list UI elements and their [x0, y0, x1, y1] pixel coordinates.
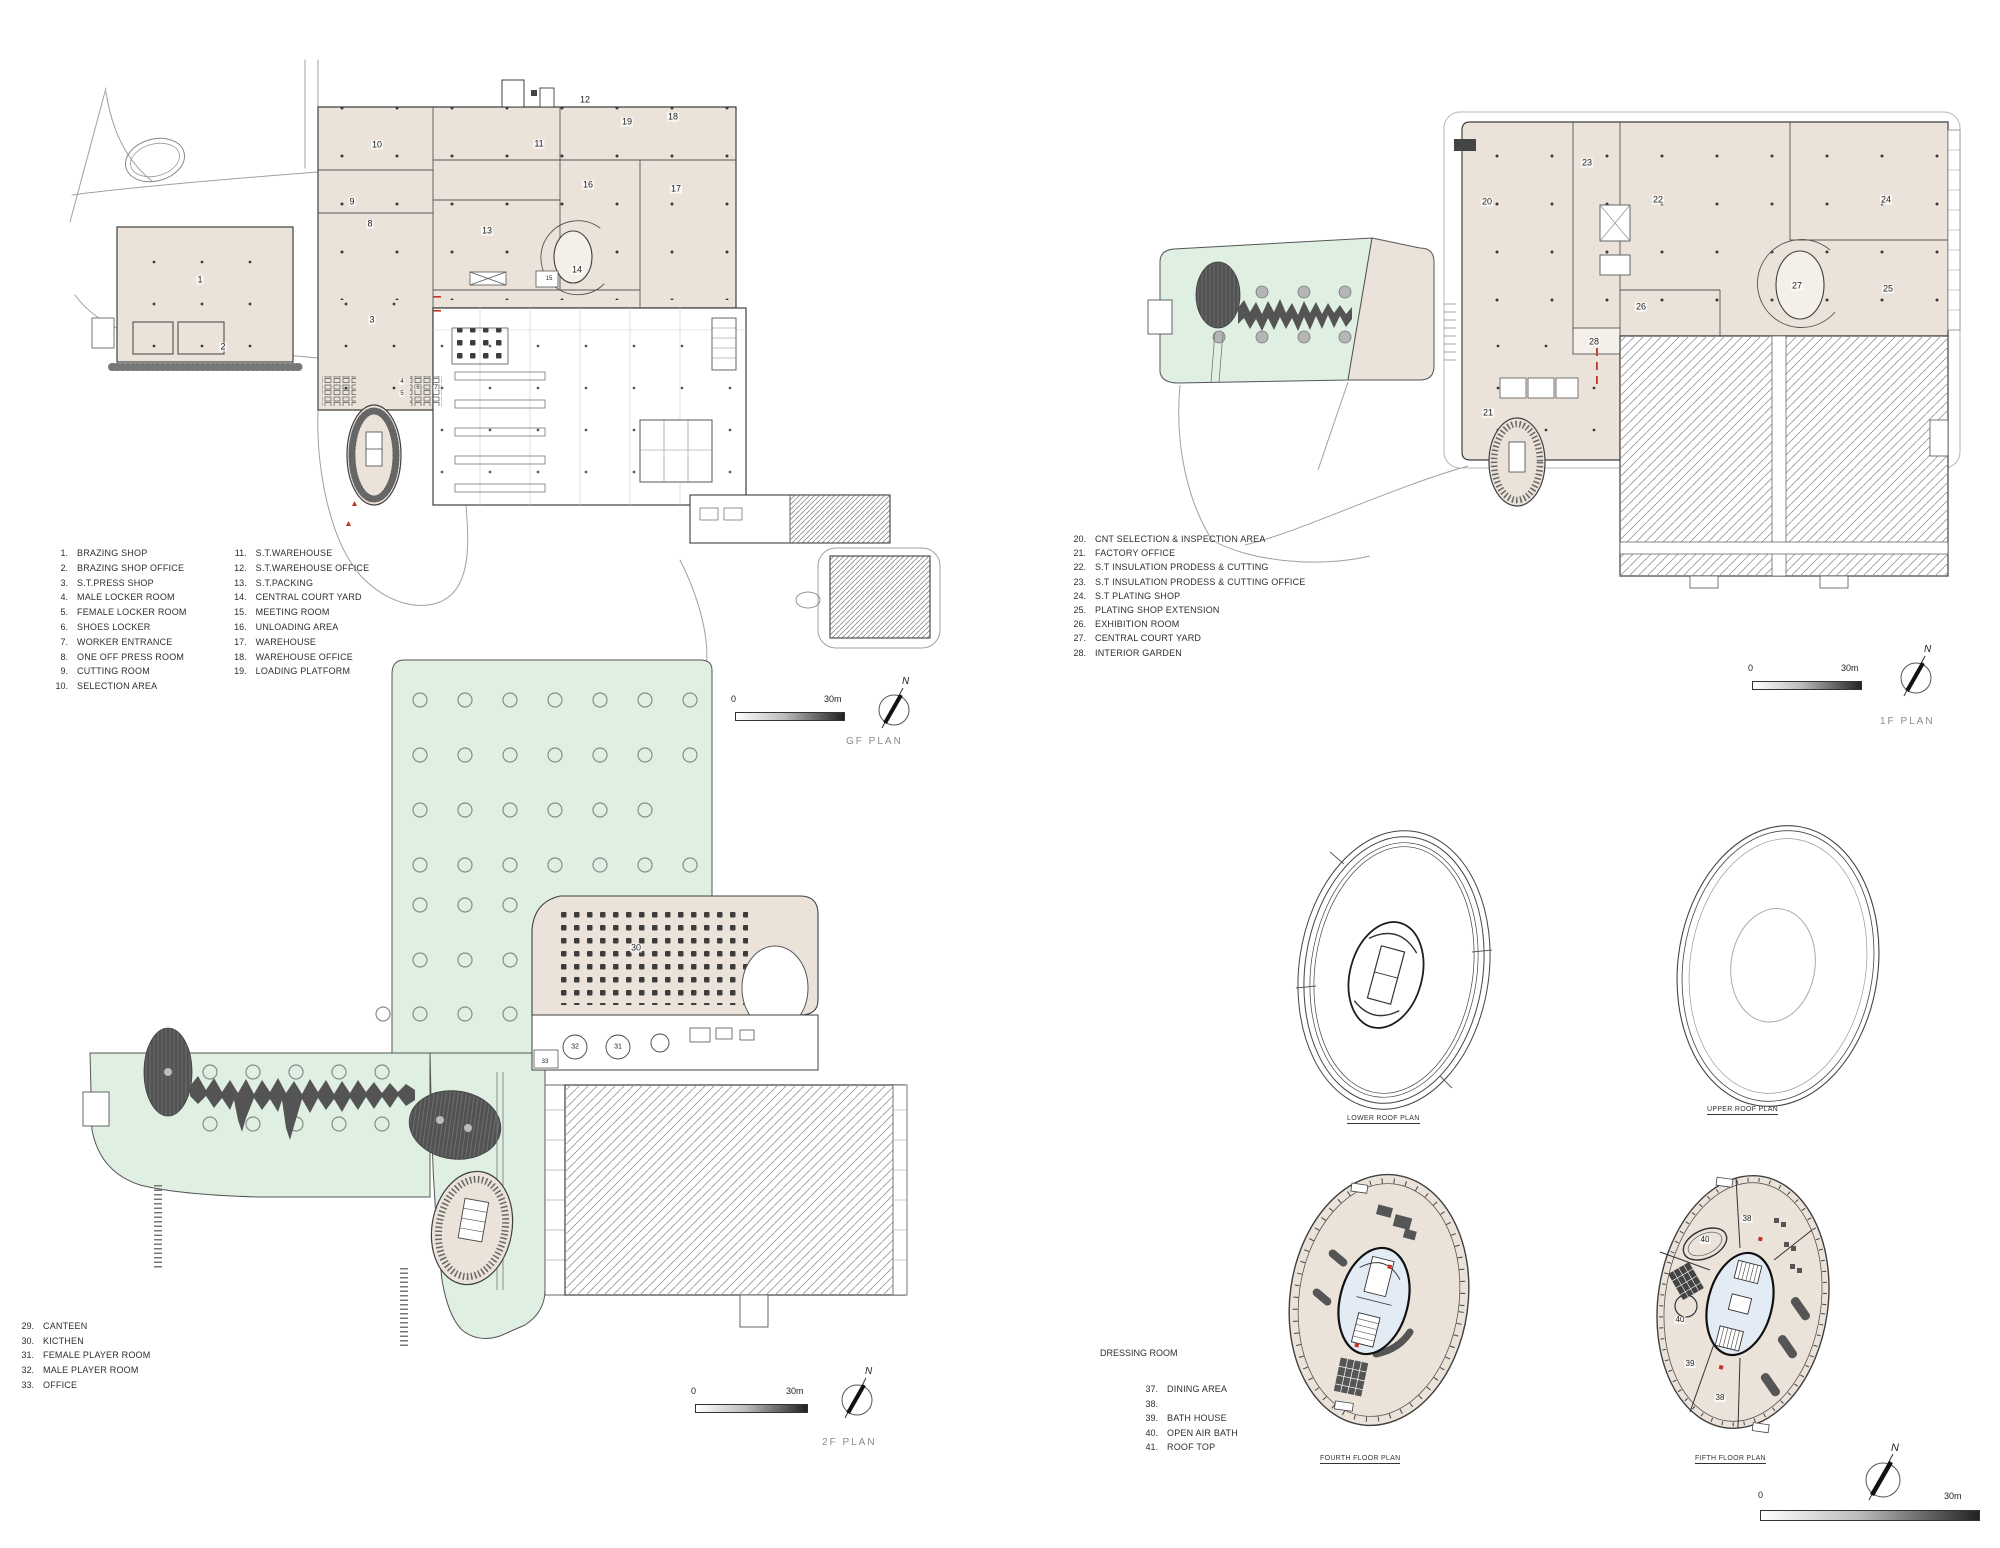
- legend-item: 9.CUTTING ROOM: [48, 664, 187, 679]
- room-number-label: 22: [1652, 196, 1664, 205]
- roof-north-arrow: N: [1857, 1438, 1909, 1506]
- room-number-label: 17: [670, 185, 682, 194]
- room-number-label: 18: [667, 113, 679, 122]
- room-number-label: 9: [348, 198, 355, 207]
- legend-item: 5.FEMALE LOCKER ROOM: [48, 605, 187, 620]
- legend-item: 41.ROOF TOP: [1136, 1440, 1238, 1455]
- room-number-label: 3: [368, 316, 375, 325]
- roof-scale-zero: 0: [1758, 1490, 1763, 1500]
- roof-scale-max: 30m: [1944, 1491, 1962, 1501]
- legend-item: 14.CENTRAL COURT YARD: [227, 590, 370, 605]
- room-number-label: 21: [1482, 409, 1494, 418]
- lower-roof-plan-label: LOWER ROOF PLAN: [1347, 1115, 1420, 1124]
- f2-plan-title: 2F PLAN: [822, 1437, 877, 1448]
- f2-scale-max: 30m: [786, 1386, 804, 1396]
- legend-item: 25.PLATING SHOP EXTENSION: [1066, 603, 1306, 617]
- room-number-label: 25: [1882, 285, 1894, 294]
- fourth-floor-plan-label: FOURTH FLOOR PLAN: [1320, 1455, 1400, 1464]
- legend-item: 4.MALE LOCKER ROOM: [48, 590, 187, 605]
- room-number-label: 8: [366, 220, 373, 229]
- f2-scale-bar: [695, 1404, 808, 1413]
- legend-item: 26.EXHIBITION ROOM: [1066, 617, 1306, 631]
- room-number-label: 28: [1588, 338, 1600, 347]
- gf-legend-col2: 11.S.T.WAREHOUSE12.S.T.WAREHOUSE OFFICE1…: [227, 546, 370, 694]
- room-number-label: 4: [399, 379, 404, 385]
- room-number-label: 10: [371, 141, 383, 150]
- legend-item: 27.CENTRAL COURT YARD: [1066, 631, 1306, 645]
- room-number-label: 5: [399, 391, 404, 397]
- legend-item: 13.S.T.PACKING: [227, 576, 370, 591]
- f2-legend: 29.CANTEEN30.KICTHEN31.FEMALE PLAYER ROO…: [14, 1319, 150, 1393]
- legend-item: 1.BRAZING SHOP: [48, 546, 187, 561]
- room-number-label: 15: [545, 276, 554, 282]
- roof-scale-bar: [1760, 1510, 1980, 1521]
- dressing-room-label: DRESSING ROOM: [1100, 1348, 1178, 1358]
- legend-item: 30.KICTHEN: [14, 1334, 150, 1349]
- legend-item: 20.CNT SELECTION & INSPECTION AREA: [1066, 532, 1306, 546]
- room-number-label: 39: [1685, 1360, 1696, 1368]
- svg-text:N: N: [865, 1366, 873, 1377]
- legend-item: 8.ONE OFF PRESS ROOM: [48, 650, 187, 665]
- legend-item: 39.BATH HOUSE: [1136, 1411, 1238, 1426]
- legend-item: 37.DINING AREA: [1136, 1382, 1238, 1397]
- f1-legend: 20.CNT SELECTION & INSPECTION AREA21.FAC…: [1066, 532, 1306, 660]
- room-number-label: 7: [433, 385, 438, 391]
- legend-item: 29.CANTEEN: [14, 1319, 150, 1334]
- room-number-label: 40: [1675, 1316, 1686, 1324]
- legend-item: 23.S.T INSULATION PRODESS & CUTTING OFFI…: [1066, 575, 1306, 589]
- svg-text:N: N: [1924, 644, 1932, 655]
- gf-legend-col1: 1.BRAZING SHOP2.BRAZING SHOP OFFICE3.S.T…: [48, 546, 187, 694]
- room-number-label: 26: [1635, 303, 1647, 312]
- legend-item: 18.WAREHOUSE OFFICE: [227, 650, 370, 665]
- room-number-label: 1: [196, 276, 203, 285]
- legend-item: 38.: [1136, 1397, 1238, 1412]
- room-number-label: 24: [1880, 196, 1892, 205]
- room-number-overlay: 1234567891011121314151617181920212223242…: [0, 0, 2000, 1548]
- room-number-label: 33: [541, 1059, 550, 1065]
- room-number-label: 30: [630, 944, 642, 953]
- f1-plan-title: 1F PLAN: [1880, 716, 1935, 727]
- svg-text:N: N: [902, 676, 910, 687]
- gf-legend: 1.BRAZING SHOP2.BRAZING SHOP OFFICE3.S.T…: [48, 546, 369, 694]
- gf-scale-bar: [735, 712, 845, 721]
- gf-north-arrow: N: [872, 672, 916, 734]
- drawing-sheet: 1234567891011121314151617181920212223242…: [0, 0, 2000, 1548]
- f1-scale-zero: 0: [1748, 663, 1753, 673]
- room-number-label: 13: [481, 227, 493, 236]
- legend-item: 21.FACTORY OFFICE: [1066, 546, 1306, 560]
- legend-item: 24.S.T PLATING SHOP: [1066, 589, 1306, 603]
- legend-item: 28.INTERIOR GARDEN: [1066, 646, 1306, 660]
- legend-item: 7.WORKER ENTRANCE: [48, 635, 187, 650]
- legend-item: 33.OFFICE: [14, 1378, 150, 1393]
- legend-item: 2.BRAZING SHOP OFFICE: [48, 561, 187, 576]
- legend-item: 10.SELECTION AREA: [48, 679, 187, 694]
- legend-item: 31.FEMALE PLAYER ROOM: [14, 1348, 150, 1363]
- room-number-label: 12: [579, 96, 591, 105]
- upper-roof-plan-label: UPPER ROOF PLAN: [1707, 1106, 1778, 1115]
- room-number-label: 20: [1481, 198, 1493, 207]
- svg-text:N: N: [1891, 1442, 1899, 1454]
- legend-item: 17.WAREHOUSE: [227, 635, 370, 650]
- room-number-label: 40: [1700, 1236, 1711, 1244]
- room-number-label: 32: [570, 1044, 580, 1051]
- f1-scale-max: 30m: [1841, 663, 1859, 673]
- room-number-label: 14: [571, 266, 583, 275]
- f2-legend-col: 29.CANTEEN30.KICTHEN31.FEMALE PLAYER ROO…: [14, 1319, 150, 1393]
- legend-item: 15.MEETING ROOM: [227, 605, 370, 620]
- room-number-label: 31: [613, 1044, 623, 1051]
- legend-item: 19.LOADING PLATFORM: [227, 664, 370, 679]
- legend-item: 16.UNLOADING AREA: [227, 620, 370, 635]
- legend-item: 22.S.T INSULATION PRODESS & CUTTING: [1066, 560, 1306, 574]
- legend-item: 12.S.T.WAREHOUSE OFFICE: [227, 561, 370, 576]
- f2-scale-zero: 0: [691, 1386, 696, 1396]
- fifth-floor-plan-label: FIFTH FLOOR PLAN: [1695, 1455, 1766, 1464]
- f2-north-arrow: N: [835, 1362, 879, 1424]
- room-number-label: 16: [582, 181, 594, 190]
- f1-legend-col: 20.CNT SELECTION & INSPECTION AREA21.FAC…: [1066, 532, 1306, 660]
- legend-item: 3.S.T.PRESS SHOP: [48, 576, 187, 591]
- roof-legend: 37.DINING AREA38.39.BATH HOUSE40.OPEN AI…: [1136, 1382, 1238, 1455]
- f1-scale-bar: [1752, 681, 1862, 690]
- room-number-label: 38: [1742, 1215, 1753, 1223]
- room-number-label: 23: [1581, 159, 1593, 168]
- gf-scale-max: 30m: [824, 694, 842, 704]
- gf-plan-title: GF PLAN: [846, 736, 903, 747]
- room-number-label: 2: [219, 343, 226, 352]
- roof-legend-col: 37.DINING AREA38.39.BATH HOUSE40.OPEN AI…: [1136, 1382, 1238, 1455]
- room-number-label: 11: [533, 140, 544, 149]
- f1-north-arrow: N: [1894, 640, 1938, 702]
- legend-item: 32.MALE PLAYER ROOM: [14, 1363, 150, 1378]
- legend-item: 6.SHOES LOCKER: [48, 620, 187, 635]
- room-number-label: 19: [621, 118, 633, 127]
- gf-scale-zero: 0: [731, 694, 736, 704]
- legend-item: 11.S.T.WAREHOUSE: [227, 546, 370, 561]
- room-number-label: 38: [1715, 1394, 1726, 1402]
- legend-item: 40.OPEN AIR BATH: [1136, 1426, 1238, 1441]
- room-number-label: 6: [415, 385, 420, 391]
- room-number-label: 27: [1791, 282, 1803, 291]
